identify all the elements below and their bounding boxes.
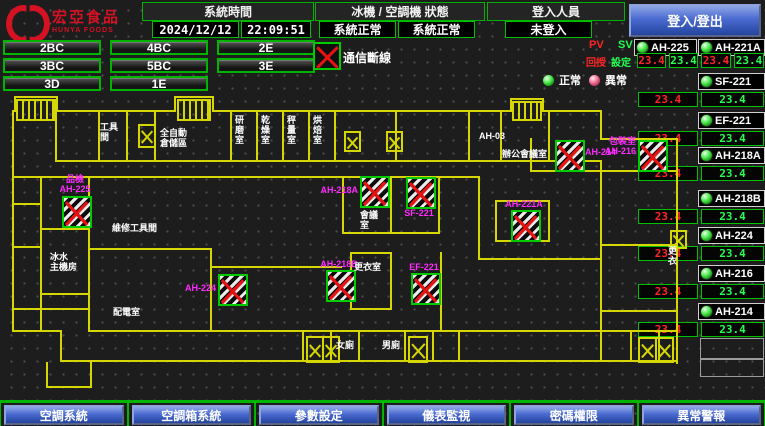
ahu-marker-label: EF-221 (397, 262, 451, 272)
ahu-status: 系統正常 (398, 21, 475, 38)
ahu-marker-label: AH-221A (497, 199, 551, 209)
ahu-marker-ah-214[interactable] (555, 140, 585, 172)
wall (350, 308, 392, 310)
wall (46, 386, 92, 388)
legend-abnormal: 異常 (588, 72, 627, 88)
floor-button-3d[interactable]: 3D (3, 76, 101, 91)
wall (88, 248, 212, 250)
sv-value: 23.4 (734, 53, 764, 68)
wall (230, 110, 232, 162)
wall (468, 110, 470, 162)
ahu-marker-label: SF-221 (392, 208, 446, 218)
wall (40, 228, 88, 230)
wall (630, 330, 632, 360)
sv-value: 23.4 (701, 246, 764, 261)
normal-label: 正常 (559, 72, 581, 88)
nav-button-參數設定[interactable]: 參數設定 (259, 405, 379, 425)
pv-header: PV (589, 39, 604, 51)
room-label: 工具 間 (100, 122, 118, 142)
sv-value: 23.4 (701, 92, 764, 107)
system-time-label: 系統時間 (142, 2, 314, 21)
ahu-marker-ah-216[interactable] (638, 140, 668, 172)
room-label: 烘焙室 (312, 115, 322, 145)
ahu-marker-label: AH-218A (314, 185, 358, 195)
wall (56, 110, 176, 112)
sv-value: 23.4 (701, 322, 764, 337)
wall (302, 330, 304, 360)
room-label: 男廁 (382, 340, 400, 350)
elevator-x-icon (138, 124, 156, 148)
unit-label: EF-221 (715, 115, 751, 127)
feedback-label: 回授 (586, 54, 606, 69)
room-label: 冰水 主機房 (50, 252, 77, 272)
pv-value: 23.4 (638, 284, 698, 299)
unit-ah-224[interactable]: AH-224 (698, 227, 765, 244)
room-label: 更衣 (667, 246, 677, 266)
wall (90, 362, 92, 388)
unit-status-led-icon (700, 267, 713, 280)
wall (458, 330, 460, 360)
system-time-value: 22:09:51 (241, 21, 311, 38)
wall (256, 110, 258, 162)
wall (358, 330, 360, 360)
room-label: 女廁 (336, 340, 354, 350)
logo-text: 宏亞食品 (52, 6, 120, 27)
setpoint-label: 設定 (611, 54, 631, 69)
wall (308, 110, 310, 162)
wall (14, 96, 58, 98)
footer-cell: 空調箱系統 (128, 402, 256, 426)
ahu-marker-ah-225[interactable] (62, 196, 92, 228)
wall (40, 293, 88, 295)
stairs-icon (16, 99, 56, 121)
wall (342, 232, 440, 234)
unit-ef-221[interactable]: EF-221 (698, 112, 765, 129)
wall (404, 330, 406, 360)
login-user-label: 登入人員 (487, 2, 625, 21)
wall (478, 176, 480, 260)
sv-value: 23.4 (701, 284, 764, 299)
ahu-marker-sf-221[interactable] (406, 177, 436, 209)
hmi-root: 宏亞食品 HUNYA FOODS 系統時間 2024/12/12 22:09:5… (0, 0, 765, 426)
wall (12, 330, 62, 332)
system-date-value: 2024/12/12 (152, 21, 239, 38)
unit-label: AH-224 (715, 230, 753, 242)
login-logout-button[interactable]: 登入/登出 (629, 4, 761, 37)
unit-ah-214[interactable]: AH-214 (698, 303, 765, 320)
wall (542, 110, 602, 112)
unit-status-led-icon (700, 114, 713, 127)
sv-value: 23.4 (701, 166, 764, 181)
room-label: 研磨室 (234, 115, 244, 145)
wall (88, 330, 678, 332)
wall (12, 246, 40, 248)
comm-loss-icon (313, 42, 341, 70)
wall (432, 330, 434, 360)
ahu-marker-label: AH-224 (172, 283, 216, 293)
ahu-marker-ah-218b[interactable] (326, 270, 356, 302)
unit-status-led-icon (700, 305, 713, 318)
legend-normal: 正常 (542, 72, 581, 88)
elevator-x-icon (344, 131, 361, 152)
spare-slot (700, 338, 764, 359)
room-label: 維修工具間 (112, 223, 157, 233)
unit-label: AH-225 (651, 42, 689, 54)
wall (174, 96, 176, 112)
sv-value: 23.4 (669, 53, 698, 68)
pv-value: 23.4 (637, 53, 666, 68)
room-label: 配電室 (113, 307, 140, 317)
nav-button-空調系統[interactable]: 空調系統 (4, 405, 124, 425)
spare-slot (700, 359, 764, 377)
wall (510, 98, 544, 100)
floor-button-grid: 2BC4BC2E3BC5BC3E3D1E (3, 40, 315, 91)
elevator-x-icon (386, 131, 403, 152)
wall (600, 310, 678, 312)
wall (438, 176, 440, 234)
room-label: AH-03 (479, 131, 505, 141)
ahu-marker-label: 品檢 AH-225 (48, 174, 102, 194)
unit-label: AH-221A (715, 42, 761, 54)
wall (174, 96, 214, 98)
footer-cell: 儀表監視 (383, 402, 511, 426)
wall (55, 160, 602, 162)
company-logo: 宏亞食品 HUNYA FOODS (6, 3, 140, 37)
wall (46, 362, 48, 388)
wall (390, 176, 392, 234)
room-label: 乾燥室 (260, 115, 270, 145)
ahu-marker-label: 包裝室 AH-216 (592, 136, 636, 156)
footer-cell: 密碼權限 (510, 402, 638, 426)
sv-header: SV (618, 39, 633, 51)
wall (548, 110, 550, 162)
wall (282, 110, 284, 162)
wall (60, 360, 678, 362)
sv-value: 23.4 (701, 131, 764, 146)
wall (126, 110, 128, 162)
wall (350, 252, 392, 254)
nav-button-異常警報[interactable]: 異常警報 (642, 405, 762, 425)
floor-button-2e[interactable]: 2E (217, 40, 315, 55)
nav-button-空調箱系統[interactable]: 空調箱系統 (132, 405, 252, 425)
login-status: 未登入 (505, 21, 592, 38)
pv-value: 23.4 (638, 92, 698, 107)
unit-sf-221[interactable]: SF-221 (698, 73, 765, 90)
wall (334, 110, 336, 162)
ahu-marker-ah-218a[interactable] (360, 176, 390, 208)
nav-button-密碼權限[interactable]: 密碼權限 (514, 405, 634, 425)
ahu-marker-ah-224[interactable] (218, 274, 248, 306)
elevator-x-icon (655, 337, 674, 363)
stairs-icon (512, 101, 542, 121)
ahu-marker-ef-221[interactable] (411, 273, 441, 305)
floor-button-1e[interactable]: 1E (110, 76, 208, 91)
ahu-marker-ah-221a[interactable] (511, 210, 541, 242)
room-label: 更衣室 (354, 262, 381, 272)
wall (12, 308, 88, 310)
unit-label: SF-221 (715, 76, 751, 88)
wall (478, 258, 602, 260)
elevator-x-icon (408, 336, 428, 363)
footer-cell: 異常警報 (638, 402, 765, 426)
pv-value: 23.4 (638, 209, 698, 224)
unit-status-led-icon (700, 192, 713, 205)
room-label: 秤量室 (286, 115, 296, 145)
pv-value: 23.4 (701, 53, 731, 68)
floor-button-2bc[interactable]: 2BC (3, 40, 101, 55)
room-label: 會議 室 (360, 210, 378, 230)
logo-icon (6, 5, 46, 35)
machine-status-label: 冰機 / 空調機 狀態 (315, 2, 485, 21)
logo-subtext: HUNYA FOODS (52, 27, 120, 34)
comm-loss-label: 通信斷線 (343, 49, 391, 66)
abnormal-label: 異常 (605, 72, 627, 88)
abnormal-led-icon (588, 74, 601, 87)
floor-button-3bc[interactable]: 3BC (3, 58, 101, 73)
wall (390, 252, 392, 310)
floor-button-5bc[interactable]: 5BC (110, 58, 208, 73)
unit-status-led-icon (700, 75, 713, 88)
normal-led-icon (542, 74, 555, 87)
wall (12, 203, 40, 205)
unit-label: AH-218A (715, 150, 761, 162)
wall (60, 330, 62, 362)
wall (12, 110, 14, 332)
unit-ah-218b[interactable]: AH-218B (698, 190, 765, 207)
unit-status-led-icon (700, 149, 713, 162)
unit-status-led-icon (700, 229, 713, 242)
unit-label: AH-216 (715, 268, 753, 280)
footer-cell: 參數設定 (255, 402, 383, 426)
unit-label: AH-218B (715, 193, 761, 205)
nav-button-儀表監視[interactable]: 儀表監視 (387, 405, 507, 425)
floor-button-4bc[interactable]: 4BC (110, 40, 208, 55)
unit-label: AH-214 (715, 306, 753, 318)
room-label: 全自動 倉儲區 (160, 128, 187, 148)
wall (600, 160, 602, 362)
sv-value: 23.4 (701, 209, 764, 224)
stairs-icon (177, 99, 211, 121)
room-label: 辦公會議室 (502, 149, 547, 159)
unit-ah-218a[interactable]: AH-218A (698, 147, 765, 164)
footer-nav: 空調系統空調箱系統參數設定儀表監視密碼權限異常警報 (0, 400, 765, 426)
footer-cell: 空調系統 (0, 402, 128, 426)
chiller-status: 系統正常 (319, 21, 396, 38)
floor-button-3e[interactable]: 3E (217, 58, 315, 73)
unit-ah-216[interactable]: AH-216 (698, 265, 765, 282)
